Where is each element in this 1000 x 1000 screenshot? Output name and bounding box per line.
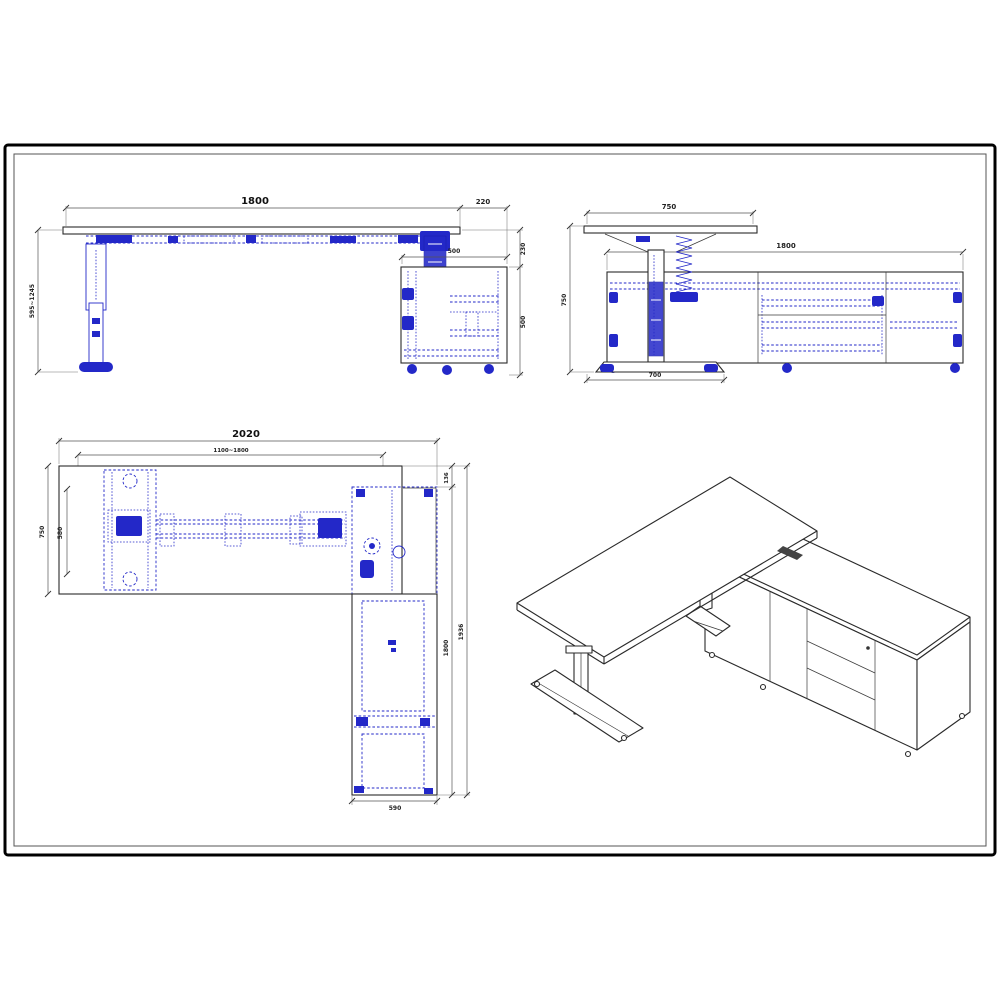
front-caster [442, 365, 452, 375]
plan-cabinet [352, 594, 437, 795]
dim-cabinet-length-label: 1800 [776, 242, 796, 250]
iso-left-leg [531, 646, 643, 742]
dim-foot-depth-label: 700 [649, 372, 662, 379]
side-desktop [584, 226, 757, 233]
dim-gap-label: 230 [520, 243, 527, 256]
dim-plan-cabinet-length-label: 1800 [443, 640, 450, 657]
isometric-view [517, 477, 970, 757]
plan-dim-bottom: 590 [349, 796, 440, 812]
front-left-leg [79, 244, 113, 372]
plan-view: 2020 1100~1800 [39, 429, 470, 812]
dim-overall-width-label: 2020 [232, 429, 260, 440]
front-dim-cabinet-depth: 500 [399, 248, 510, 264]
side-dim-depth: 750 [584, 203, 756, 224]
side-dim-foot: 700 [584, 372, 727, 383]
dim-cabinet-width-label: 590 [389, 805, 402, 812]
technical-drawing: 1800 220 [0, 0, 1000, 1000]
dim-cabinet-depth-label: 500 [448, 248, 461, 255]
drawing-sheet: 1800 220 [0, 0, 1000, 1000]
dim-overall-depth-label: 1936 [458, 624, 465, 641]
side-elevation-view: 750 [561, 203, 966, 383]
dim-back-overhang-label: 136 [444, 472, 450, 484]
side-dim-height: 750 [561, 223, 594, 375]
dim-desk-width-label: 1800 [241, 196, 269, 207]
dim-overall-height-label: 750 [561, 294, 568, 307]
dim-plan-desk-depth-label: 750 [39, 526, 46, 539]
plan-desktop [59, 466, 402, 594]
dim-cabinet-height-label: 500 [520, 316, 527, 329]
side-caster [950, 363, 960, 373]
front-desktop [63, 227, 460, 234]
dim-top-overhang-label: 220 [476, 198, 491, 206]
front-caster [484, 364, 494, 374]
dim-frame-range-label: 1100~1800 [213, 448, 248, 454]
front-caster [407, 364, 417, 374]
side-caster [782, 363, 792, 373]
front-dim-height-range: 595~1245 [29, 227, 78, 375]
dim-height-range-label: 595~1245 [29, 284, 36, 318]
dim-leg-frame-depth-label: 580 [57, 527, 64, 540]
front-cabinet [401, 267, 507, 375]
dim-desk-depth-label: 750 [662, 203, 677, 211]
front-elevation-view: 1800 220 [29, 196, 527, 378]
iso-keyhole [866, 646, 870, 650]
